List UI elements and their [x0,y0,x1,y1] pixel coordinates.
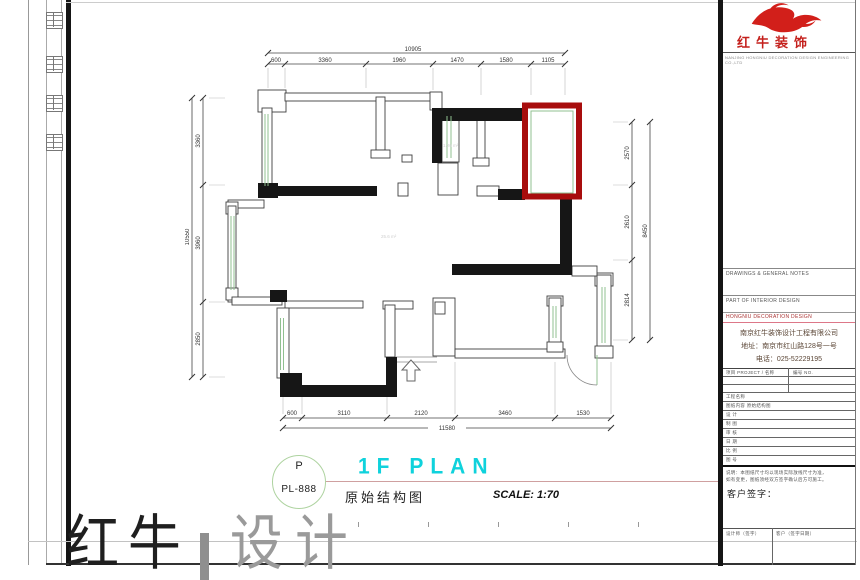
sheet-circle: P PL-888 [272,455,326,509]
dim-top-total: 10905 [405,47,422,53]
table-row: 日 期 [726,439,737,445]
table-row: 工程名称 [726,394,745,400]
watermark-separator [200,533,209,580]
svg-text:2570: 2570 [625,146,631,160]
titleblock-thick-line [723,465,855,467]
company-name: 南京红牛装饰设计工程有限公司 [723,327,855,340]
customer-sign-label: 客户签字： [727,487,777,500]
note-line: 如有变更，图纸须经双方签字确认后方可施工。 [726,477,827,483]
svg-text:2850: 2850 [196,332,202,346]
svg-text:1105: 1105 [542,58,556,64]
titleblock-line [723,419,855,420]
frame-border-left [66,0,71,566]
bull-logo-icon [745,2,829,34]
index-strip-cell [46,95,63,112]
svg-text:1580: 1580 [499,58,513,64]
svg-text:1960: 1960 [392,58,406,64]
table-row: 审 核 [726,430,737,436]
watermark-text-right: 设计 [230,514,360,574]
titleblock-line [723,52,855,53]
titleblock-line [723,528,855,529]
titleblock-line-pink [723,322,855,323]
dim-bottom-total: 11580 [439,426,456,432]
frame-border-right [855,0,856,565]
index-strip-divider [53,56,54,71]
svg-text:1.26 m²: 1.26 m² [443,143,459,148]
index-strip-divider [53,12,54,27]
company-header: HONGNIU DECORATION DESIGN [726,314,812,320]
titleblock-line [723,368,855,369]
brand-tagline: NANJING HONGNIU DECORATION DESIGN ENGINE… [725,55,853,65]
entry-threshold [395,357,437,362]
watermark-text-left: 红牛 [66,514,189,574]
svg-text:25.6 m²: 25.6 m² [381,234,397,239]
table-row: 图纸内容 原始结构图 [726,403,771,409]
svg-text:3360: 3360 [196,134,202,148]
index-strip-divider [53,95,54,110]
dim-left-total: 10550 [185,228,191,245]
layout-tick [428,522,429,527]
svg-text:600: 600 [287,411,298,417]
sheet-circle-letter: P [273,460,325,472]
company-address: 地址：南京市红山路128号一号 [723,340,855,353]
layout-tick [638,522,639,527]
svg-text:2814: 2814 [625,293,631,307]
titleblock-line [723,376,855,377]
entry-arrow-icon [402,360,420,381]
dim-right-total: 8450 [643,224,649,238]
svg-text:1470: 1470 [450,58,464,64]
svg-text:1530: 1530 [576,411,590,417]
plan-scale: SCALE: 1:70 [493,489,559,501]
titleblock-line [723,410,855,411]
table-row: 制 图 [726,421,737,427]
svg-text:2120: 2120 [414,411,428,417]
titleblock-line [723,392,855,393]
company-info: 南京红牛装饰设计工程有限公司 地址：南京市红山路128号一号 电话：025-52… [723,327,855,366]
footer-cell: 客户（签字日期） [776,531,814,537]
plan-subtitle: 原始结构图 [345,487,425,506]
titleblock-line [723,312,855,313]
svg-text:3960: 3960 [196,236,202,250]
index-strip-cell [46,134,63,151]
index-strip-cell [46,56,63,73]
table-divider [772,528,773,565]
titleblock-line [723,268,855,269]
titleblock-line [723,401,855,402]
svg-text:3360: 3360 [318,58,332,64]
titleblock-line [723,446,855,447]
title-underline [272,481,718,482]
table-row: 图 号 [726,457,737,463]
index-strip-divider [53,134,54,149]
layout-tick [568,522,569,527]
svg-text:3110: 3110 [338,411,352,417]
layout-tick [498,522,499,527]
frame-line [28,0,29,565]
svg-text:2610: 2610 [625,215,631,229]
frame-line [61,0,62,565]
company-phone: 电话：025-52229195 [723,353,855,366]
floor-plan: 10905 600 3360 1960 1470 1580 1105 600 3… [185,40,670,435]
index-strip-cell [46,12,63,29]
footer-cell: 设计师（签字） [726,531,760,537]
titleblock-line [723,437,855,438]
section-label: PART OF INTERIOR DESIGN [726,298,800,304]
table-row: 比 例 [726,448,737,454]
titleblock-line [723,295,855,296]
door-arc [567,355,597,385]
frame-line [46,0,47,565]
walls-outline [226,90,613,378]
svg-text:600: 600 [271,58,282,64]
titleblock-line [723,428,855,429]
watermark: 红牛设计 [58,514,369,580]
section-label: DRAWINGS & GENERAL NOTES [726,271,809,277]
note-line: 说明：本图纸尺寸均以现场实际放线尺寸为准， [726,470,827,476]
brand-name: 红牛装饰 [737,32,813,51]
plan-title: 1F PLAN [358,454,495,479]
table-divider [788,368,789,392]
titleblock-line [723,455,855,456]
sheet-number: PL-888 [273,484,325,495]
titleblock-line [723,384,855,385]
svg-text:3460: 3460 [498,411,512,417]
title-block: 红牛装饰 NANJING HONGNIU DECORATION DESIGN E… [723,0,855,566]
highlight-red-box [525,106,579,197]
table-row: 设 计 [726,412,737,418]
drawing-sheet: 10905 600 3360 1960 1470 1580 1105 600 3… [0,0,860,580]
